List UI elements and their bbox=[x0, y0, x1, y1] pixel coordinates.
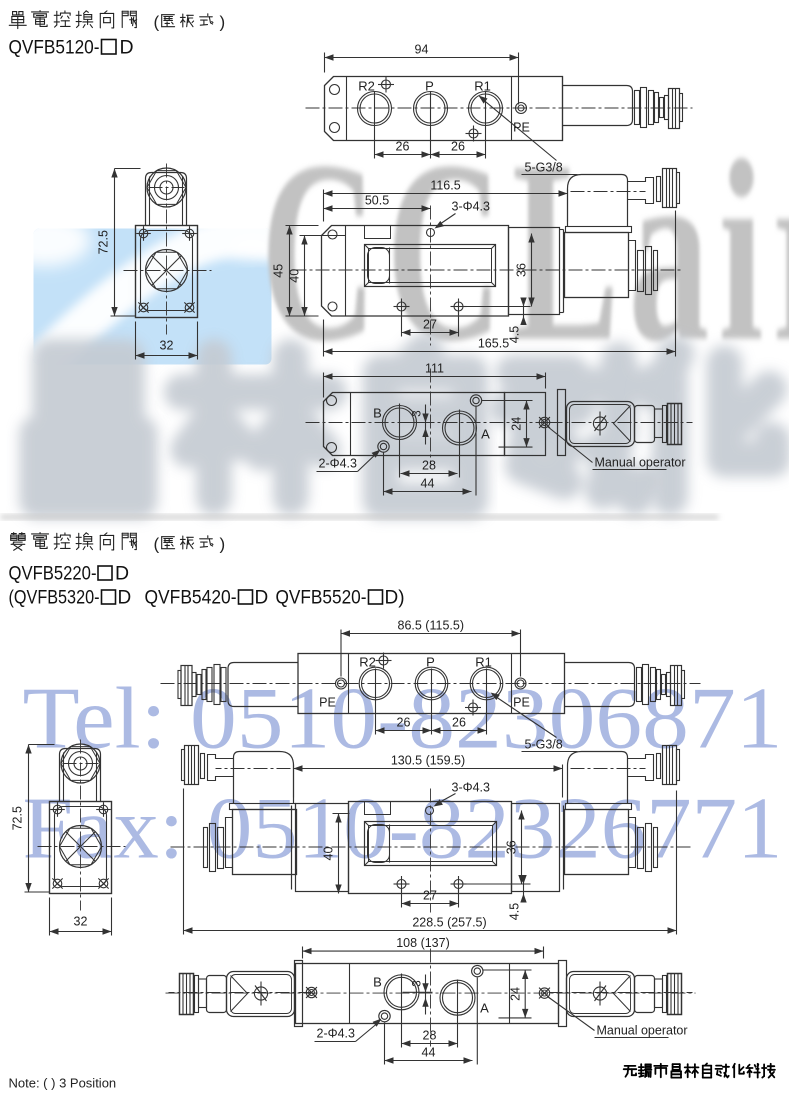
svg-text:QVFB5520-: QVFB5520- bbox=[276, 588, 367, 609]
svg-text:D): D) bbox=[385, 588, 405, 609]
svg-text:2-Φ4.3: 2-Φ4.3 bbox=[317, 1027, 356, 1041]
svg-text:): ) bbox=[220, 13, 226, 32]
svg-text:PE: PE bbox=[513, 696, 530, 710]
svg-text:94: 94 bbox=[415, 43, 429, 57]
svg-text:B: B bbox=[373, 406, 382, 421]
svg-text:(: ( bbox=[154, 535, 160, 554]
svg-text:A: A bbox=[480, 1001, 489, 1016]
svg-text:24: 24 bbox=[509, 987, 523, 1001]
svg-text:R2: R2 bbox=[359, 655, 376, 670]
svg-text:Fax: 0510-82326771: Fax: 0510-82326771 bbox=[23, 781, 783, 878]
svg-text:28: 28 bbox=[422, 459, 436, 473]
svg-text:45: 45 bbox=[272, 264, 286, 278]
svg-text:R2: R2 bbox=[358, 79, 375, 94]
svg-text:27: 27 bbox=[423, 889, 437, 903]
svg-text:2-Φ4.3: 2-Φ4.3 bbox=[319, 457, 358, 471]
svg-text:Manual operator: Manual operator bbox=[597, 1024, 688, 1038]
svg-text:28: 28 bbox=[423, 1029, 437, 1043]
svg-text:Note: ( ) 3 Position: Note: ( ) 3 Position bbox=[9, 1076, 117, 1091]
svg-text:QVFB5420-: QVFB5420- bbox=[145, 588, 237, 609]
svg-text:A: A bbox=[481, 427, 490, 442]
svg-text:130.5 (159.5): 130.5 (159.5) bbox=[391, 754, 465, 768]
svg-text:R1: R1 bbox=[475, 655, 492, 670]
svg-text:D: D bbox=[118, 588, 132, 609]
svg-text:26: 26 bbox=[396, 140, 410, 154]
svg-text:QVFB5120-: QVFB5120- bbox=[9, 37, 100, 59]
svg-text:3: 3 bbox=[412, 980, 424, 986]
svg-text:PE: PE bbox=[319, 696, 336, 710]
svg-text:(: ( bbox=[154, 13, 160, 32]
svg-text:3-Φ4.3: 3-Φ4.3 bbox=[452, 200, 491, 214]
svg-text:): ) bbox=[220, 535, 226, 554]
svg-text:P: P bbox=[426, 655, 435, 670]
svg-text:4.5: 4.5 bbox=[508, 326, 522, 343]
svg-text:116.5: 116.5 bbox=[430, 179, 460, 193]
svg-text:165.5: 165.5 bbox=[478, 337, 509, 351]
svg-text:26: 26 bbox=[451, 140, 465, 154]
svg-text:72.5: 72.5 bbox=[97, 230, 111, 254]
svg-text:5-G3/8: 5-G3/8 bbox=[525, 738, 563, 752]
svg-text:26: 26 bbox=[452, 716, 466, 730]
svg-text:3-Φ4.3: 3-Φ4.3 bbox=[452, 781, 491, 795]
svg-text:40: 40 bbox=[288, 269, 302, 283]
svg-text:86.5 (115.5): 86.5 (115.5) bbox=[398, 619, 464, 633]
svg-text:5-G3/8: 5-G3/8 bbox=[525, 161, 563, 175]
svg-text:D: D bbox=[120, 37, 134, 59]
svg-text:27: 27 bbox=[423, 318, 437, 332]
svg-text:QVFB5220-: QVFB5220- bbox=[9, 563, 97, 585]
svg-text:228.5 (257.5): 228.5 (257.5) bbox=[412, 916, 486, 930]
svg-text:Manual operator: Manual operator bbox=[595, 456, 686, 470]
svg-text:D: D bbox=[115, 563, 129, 585]
svg-text:108 (137): 108 (137) bbox=[396, 936, 450, 950]
svg-text:D: D bbox=[255, 588, 269, 609]
svg-text:72.5: 72.5 bbox=[11, 806, 25, 830]
svg-text:50.5: 50.5 bbox=[365, 194, 389, 208]
svg-text:36: 36 bbox=[515, 263, 529, 277]
svg-text:44: 44 bbox=[421, 477, 435, 491]
svg-text:4.5: 4.5 bbox=[508, 903, 522, 920]
svg-text:36: 36 bbox=[505, 840, 519, 854]
svg-text:111: 111 bbox=[425, 362, 444, 376]
svg-text:3: 3 bbox=[412, 410, 424, 416]
svg-text:32: 32 bbox=[74, 915, 88, 929]
svg-text:32: 32 bbox=[160, 339, 174, 353]
svg-text:24: 24 bbox=[510, 417, 524, 431]
svg-text:26: 26 bbox=[397, 716, 411, 730]
svg-text:B: B bbox=[373, 975, 382, 990]
svg-text:44: 44 bbox=[422, 1046, 436, 1060]
svg-text:R1: R1 bbox=[474, 79, 491, 94]
svg-text:40: 40 bbox=[322, 847, 336, 861]
svg-text:(QVFB5320-: (QVFB5320- bbox=[9, 588, 100, 609]
svg-text:P: P bbox=[425, 79, 434, 94]
svg-text:PE: PE bbox=[513, 121, 530, 135]
